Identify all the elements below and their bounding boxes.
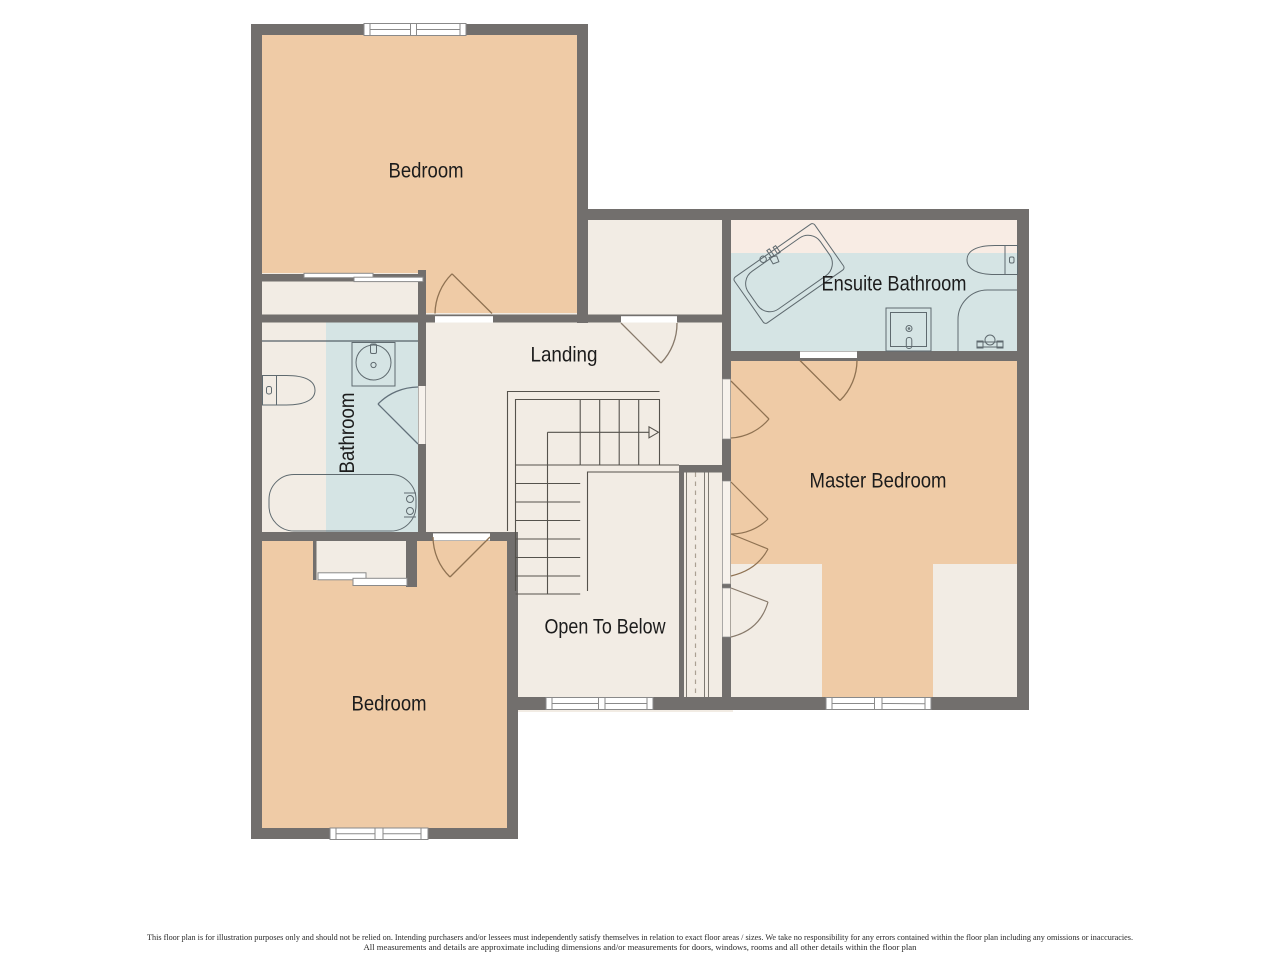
svg-text:Ensuite Bathroom: Ensuite Bathroom (822, 272, 967, 296)
svg-text:All measurements and details a: All measurements and details are approxi… (364, 943, 917, 952)
svg-text:Open To Below: Open To Below (545, 615, 666, 639)
svg-text:This floor plan is for illustr: This floor plan is for illustration purp… (147, 933, 1133, 942)
svg-text:Master Bedroom: Master Bedroom (810, 469, 947, 493)
svg-text:Bedroom: Bedroom (352, 692, 427, 716)
svg-text:Landing: Landing (531, 343, 598, 367)
svg-text:Bathroom: Bathroom (335, 393, 359, 474)
svg-text:Bedroom: Bedroom (389, 159, 464, 183)
